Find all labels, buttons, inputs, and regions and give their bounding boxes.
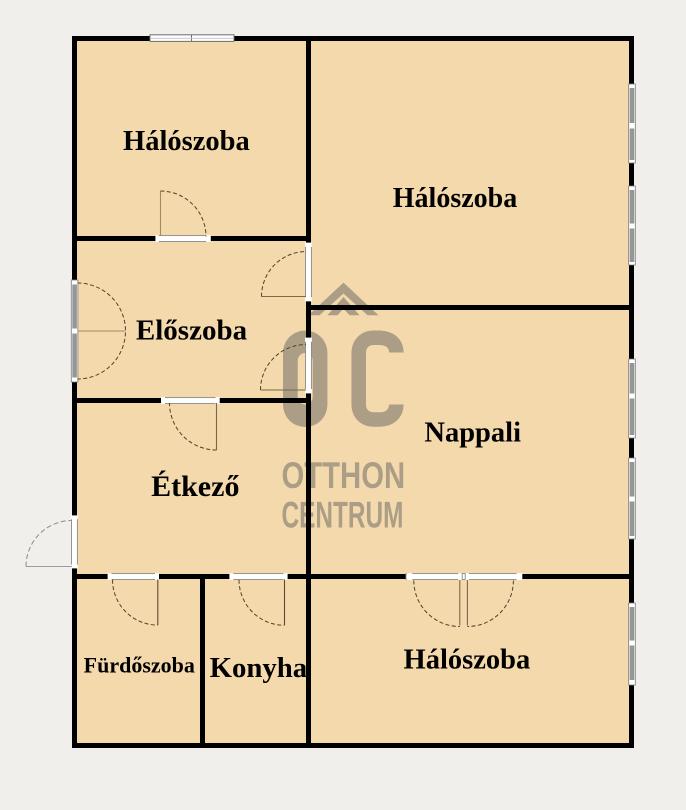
svg-text:CENTRUM: CENTRUM xyxy=(282,494,404,535)
svg-text:Előszoba: Előszoba xyxy=(136,314,248,346)
svg-text:Fürdőszoba: Fürdőszoba xyxy=(84,653,195,678)
svg-text:Nappali: Nappali xyxy=(424,417,521,448)
svg-text:Hálószoba: Hálószoba xyxy=(393,183,517,214)
svg-text:Étkező: Étkező xyxy=(151,470,239,503)
svg-text:Hálószoba: Hálószoba xyxy=(404,645,531,676)
svg-text:Konyha: Konyha xyxy=(210,652,308,684)
svg-text:OTTHON: OTTHON xyxy=(281,455,405,496)
svg-text:Hálószoba: Hálószoba xyxy=(123,126,250,157)
